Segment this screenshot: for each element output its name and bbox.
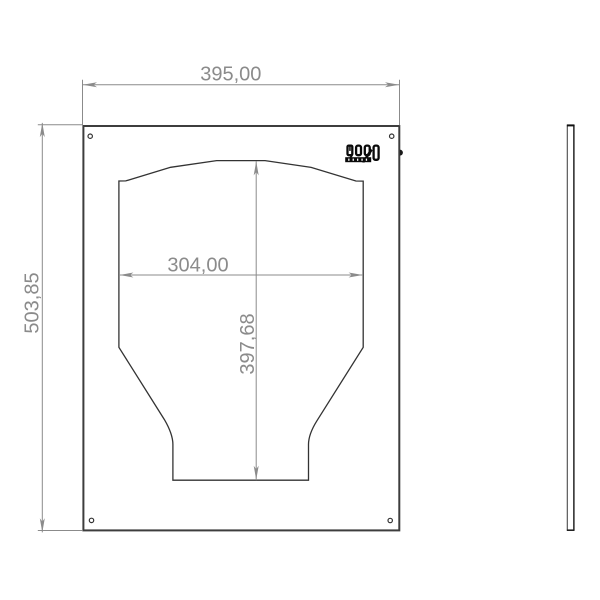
svg-text:395,00: 395,00 [200, 64, 261, 86]
svg-text:503,85: 503,85 [22, 272, 44, 333]
svg-text:397,68: 397,68 [237, 313, 259, 374]
svg-text:304,00: 304,00 [167, 255, 228, 277]
